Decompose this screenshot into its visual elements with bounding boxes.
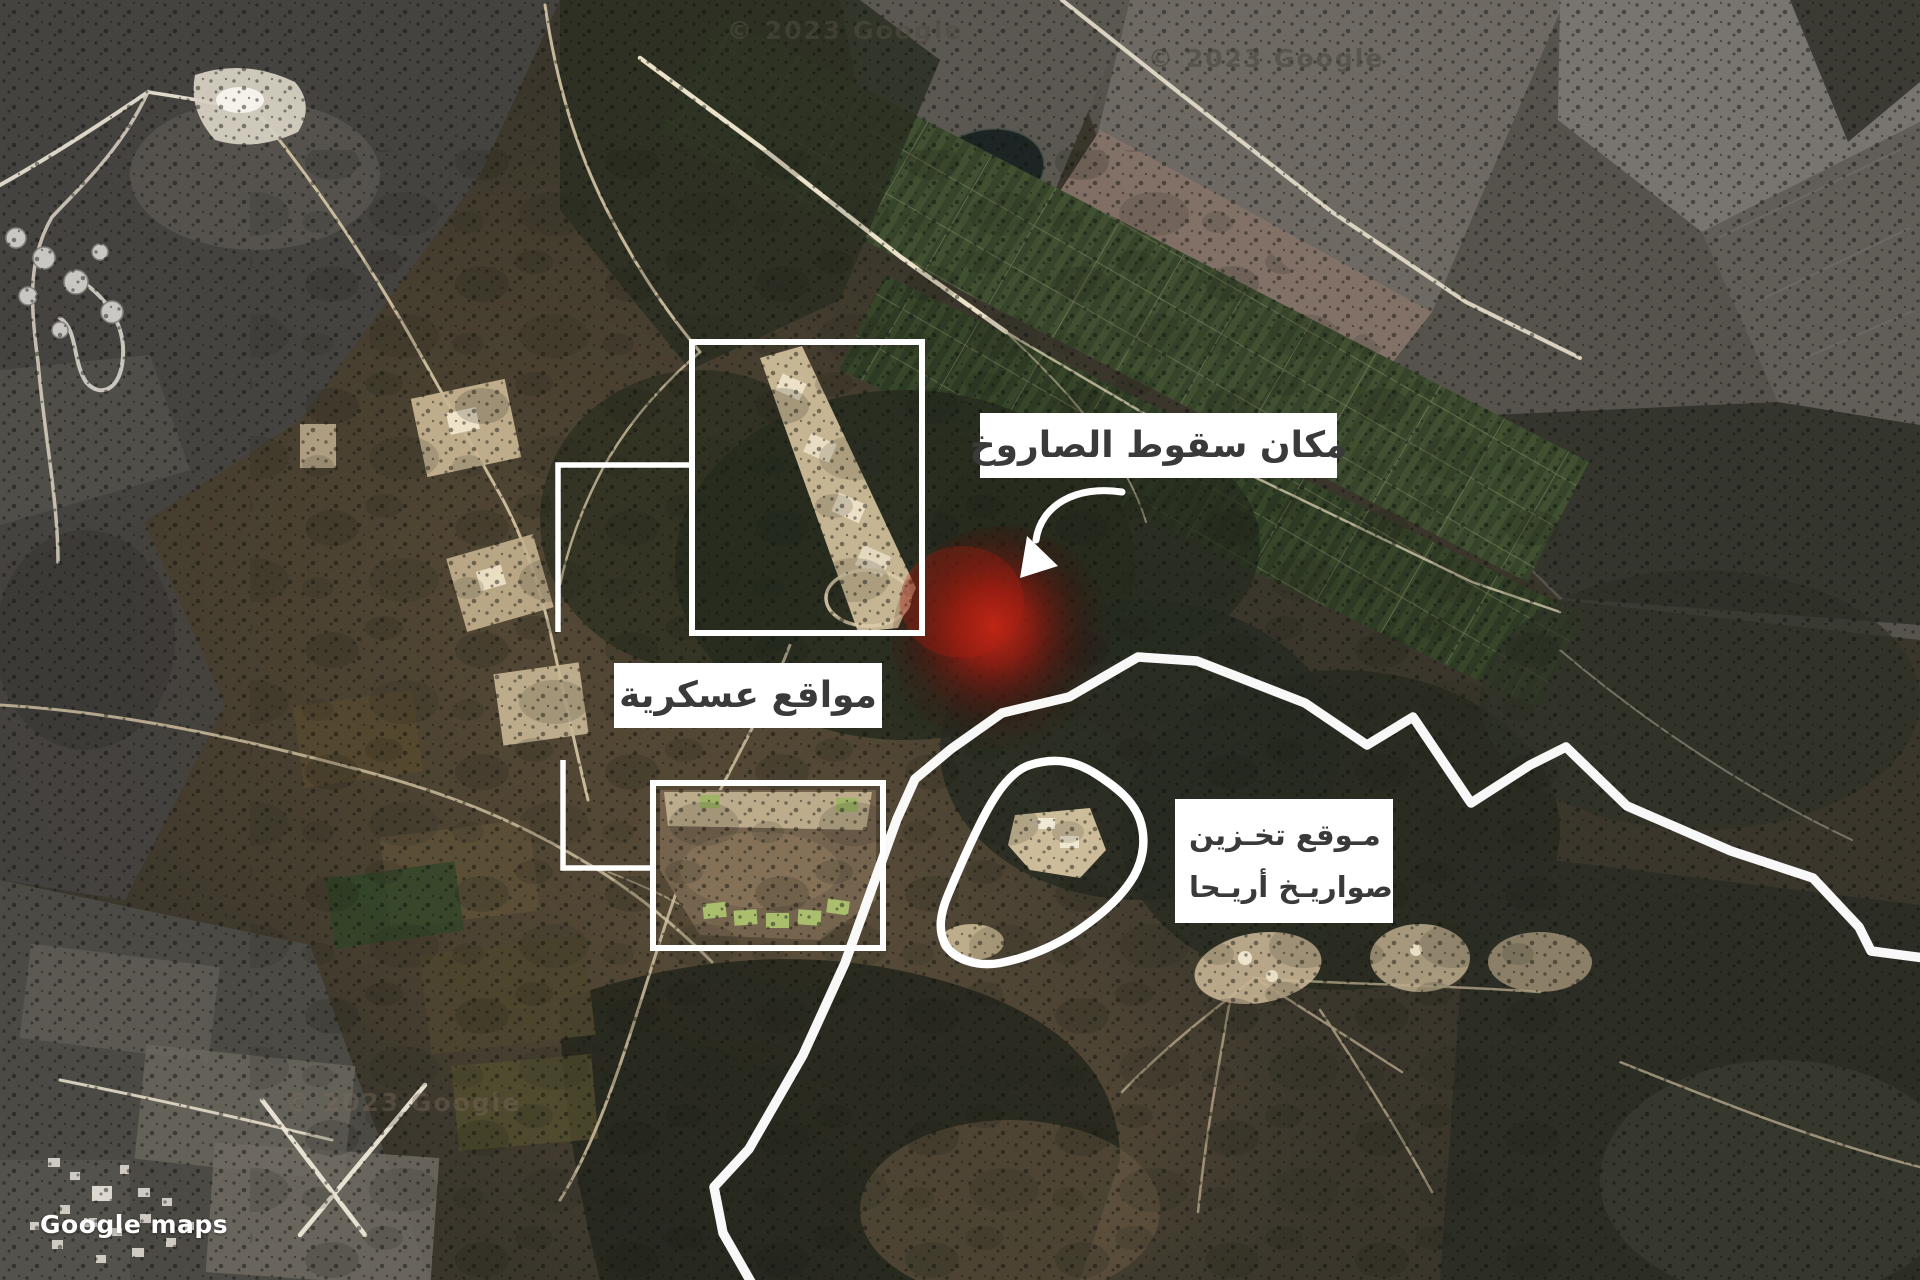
google-maps-credit: Google maps: [40, 1210, 228, 1239]
label-storage-site: مـوقع تخـزين صواريـخ أريـحا: [1175, 799, 1393, 923]
label-storage-site-line1: مـوقع تخـزين: [1189, 809, 1381, 861]
label-military-sites-text: مواقع عسكرية: [619, 675, 877, 716]
label-rocket-impact-text: مكان سقوط الصاروخ: [970, 425, 1348, 466]
satellite-annotation-graphic: مكان سقوط الصاروخ مواقع عسكرية مـوقع تخـ…: [0, 0, 1920, 1280]
label-military-sites: مواقع عسكرية: [614, 663, 882, 728]
label-rocket-impact: مكان سقوط الصاروخ: [980, 413, 1337, 478]
label-storage-site-line2: صواريـخ أريـحا: [1189, 861, 1393, 913]
google-watermark: © 2023 Google: [285, 1088, 521, 1117]
google-watermark: © 2023 Google: [1148, 44, 1384, 73]
google-watermark: © 2023 Google: [727, 16, 963, 45]
